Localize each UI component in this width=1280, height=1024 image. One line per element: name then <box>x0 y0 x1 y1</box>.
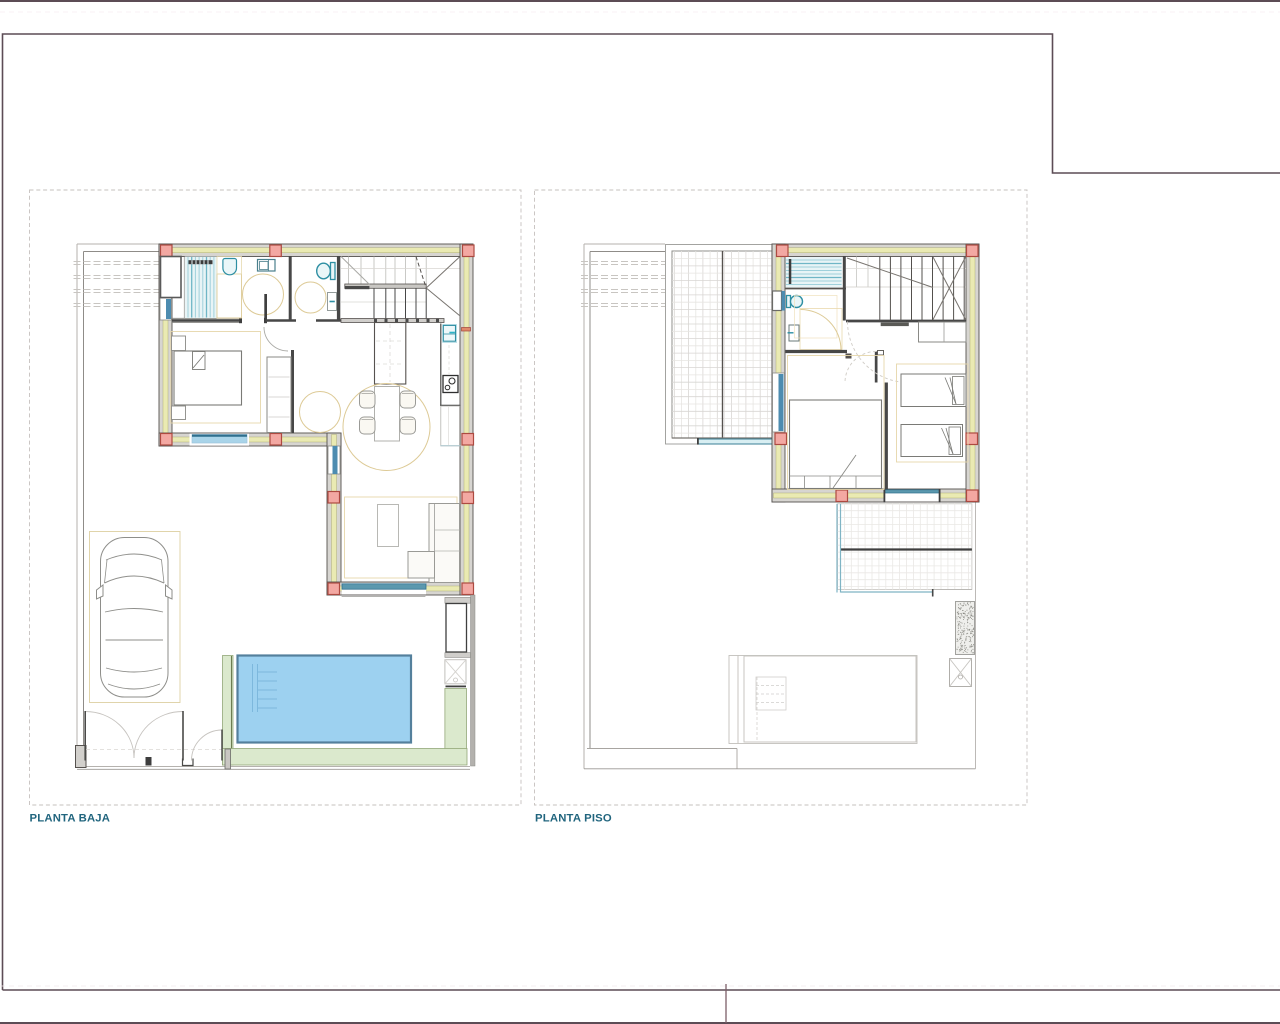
svg-text:PLANTA BAJA: PLANTA BAJA <box>30 813 111 825</box>
svg-text:PLANTA PISO: PLANTA PISO <box>535 813 612 825</box>
